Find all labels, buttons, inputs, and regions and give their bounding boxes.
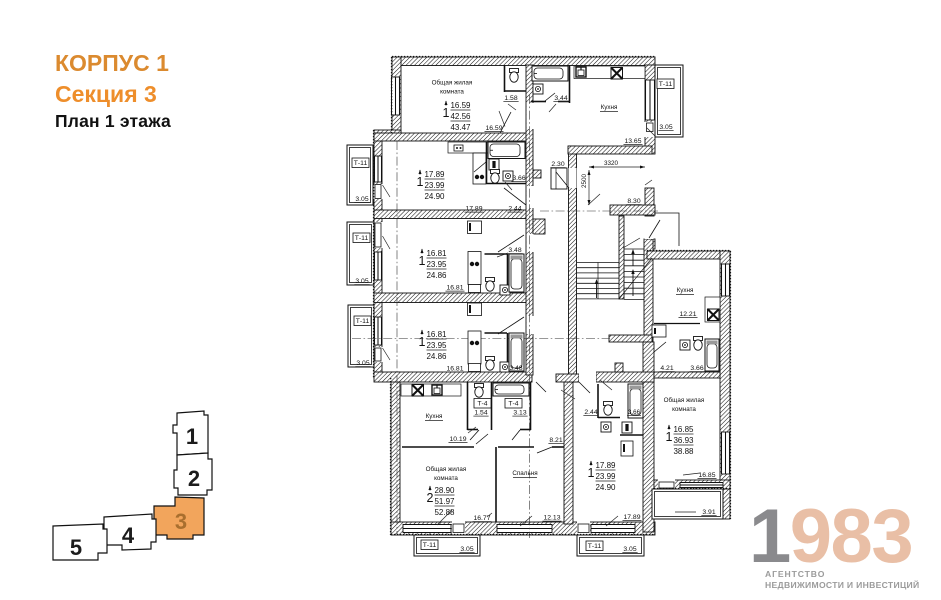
svg-text:38.88: 38.88 (673, 447, 694, 456)
svg-text:5: 5 (70, 535, 82, 560)
svg-text:16.85: 16.85 (673, 425, 694, 434)
svg-text:42.56: 42.56 (450, 112, 471, 121)
svg-text:24.90: 24.90 (424, 192, 445, 201)
svg-text:1: 1 (419, 254, 426, 268)
svg-text:1: 1 (419, 335, 426, 349)
svg-text:3: 3 (175, 509, 187, 534)
svg-text:10.19: 10.19 (449, 436, 466, 443)
svg-text:16.59: 16.59 (485, 125, 502, 132)
svg-text:3.48: 3.48 (508, 247, 521, 254)
svg-text:2.44: 2.44 (508, 206, 521, 213)
svg-text:Т-11: Т-11 (659, 81, 673, 88)
svg-text:Т-4: Т-4 (508, 401, 518, 408)
svg-text:3.48: 3.48 (509, 365, 522, 372)
svg-text:Т-11: Т-11 (356, 318, 370, 325)
svg-text:Кухня: Кухня (426, 413, 443, 420)
svg-text:1.54: 1.54 (474, 410, 487, 417)
svg-text:комната: комната (672, 406, 696, 413)
svg-text:17.89: 17.89 (623, 514, 640, 521)
svg-text:3.66: 3.66 (690, 365, 703, 372)
svg-text:51.97: 51.97 (434, 497, 455, 506)
svg-text:36.93: 36.93 (673, 436, 694, 445)
svg-text:Т-11: Т-11 (355, 235, 369, 242)
svg-text:1: 1 (443, 106, 450, 120)
svg-text:16.85: 16.85 (698, 472, 715, 479)
svg-text:2: 2 (427, 491, 434, 505)
svg-text:3.66: 3.66 (628, 409, 641, 416)
svg-text:23.95: 23.95 (426, 260, 447, 269)
svg-text:комната: комната (434, 475, 458, 482)
svg-text:23.95: 23.95 (426, 341, 447, 350)
svg-text:3.05: 3.05 (355, 278, 368, 285)
svg-text:1.58: 1.58 (504, 95, 517, 102)
svg-text:8.21: 8.21 (549, 437, 562, 444)
svg-text:3.05: 3.05 (460, 546, 473, 553)
svg-text:1: 1 (588, 466, 595, 480)
svg-text:3.05: 3.05 (659, 124, 672, 131)
svg-text:Кухня: Кухня (677, 287, 694, 294)
svg-text:Т-11: Т-11 (354, 160, 368, 167)
svg-text:13.65: 13.65 (624, 138, 641, 145)
svg-text:24.86: 24.86 (426, 352, 447, 361)
svg-text:Общая жилая: Общая жилая (664, 396, 705, 404)
svg-text:12.21: 12.21 (679, 311, 696, 318)
svg-text:17.89: 17.89 (465, 206, 482, 213)
svg-text:16.81: 16.81 (426, 330, 447, 339)
svg-text:Спальня: Спальня (512, 470, 537, 477)
svg-text:28.90: 28.90 (434, 486, 455, 495)
svg-text:3.13: 3.13 (513, 410, 526, 417)
svg-text:3.05: 3.05 (623, 546, 636, 553)
svg-text:43.47: 43.47 (450, 123, 471, 132)
svg-text:3.91: 3.91 (702, 509, 715, 516)
svg-text:3.05: 3.05 (356, 360, 369, 367)
svg-text:24.90: 24.90 (595, 483, 616, 492)
svg-text:24.86: 24.86 (426, 271, 447, 280)
svg-text:2: 2 (188, 466, 200, 491)
svg-text:3.44: 3.44 (554, 95, 567, 102)
svg-text:4.21: 4.21 (660, 365, 673, 372)
svg-text:2500: 2500 (581, 174, 588, 189)
svg-text:2.44: 2.44 (584, 409, 597, 416)
svg-text:Т-4: Т-4 (477, 401, 487, 408)
svg-text:52.88: 52.88 (434, 508, 455, 517)
svg-text:Общая жилая: Общая жилая (426, 465, 467, 473)
svg-text:12.13: 12.13 (543, 515, 560, 522)
svg-text:3.66: 3.66 (512, 175, 525, 182)
svg-text:Т-11: Т-11 (423, 542, 437, 549)
svg-text:3.05: 3.05 (355, 196, 368, 203)
svg-text:23.99: 23.99 (424, 181, 445, 190)
svg-text:17.89: 17.89 (424, 170, 445, 179)
svg-text:17.89: 17.89 (595, 461, 616, 470)
svg-text:1: 1 (186, 424, 198, 449)
svg-text:Т-11: Т-11 (588, 543, 602, 550)
svg-text:8.30: 8.30 (627, 198, 640, 205)
svg-text:1: 1 (666, 430, 673, 444)
svg-text:16.81: 16.81 (426, 249, 447, 258)
svg-text:Кухня: Кухня (601, 104, 618, 111)
svg-text:1: 1 (417, 175, 424, 189)
svg-text:4: 4 (122, 523, 135, 548)
svg-text:2.30: 2.30 (551, 161, 564, 168)
svg-text:3320: 3320 (604, 160, 619, 167)
svg-text:16.59: 16.59 (450, 101, 471, 110)
svg-text:16.81: 16.81 (446, 285, 463, 292)
svg-text:23.99: 23.99 (595, 472, 616, 481)
svg-text:16.81: 16.81 (446, 366, 463, 373)
svg-text:комната: комната (440, 89, 464, 96)
svg-text:Общая жилая: Общая жилая (432, 79, 473, 87)
